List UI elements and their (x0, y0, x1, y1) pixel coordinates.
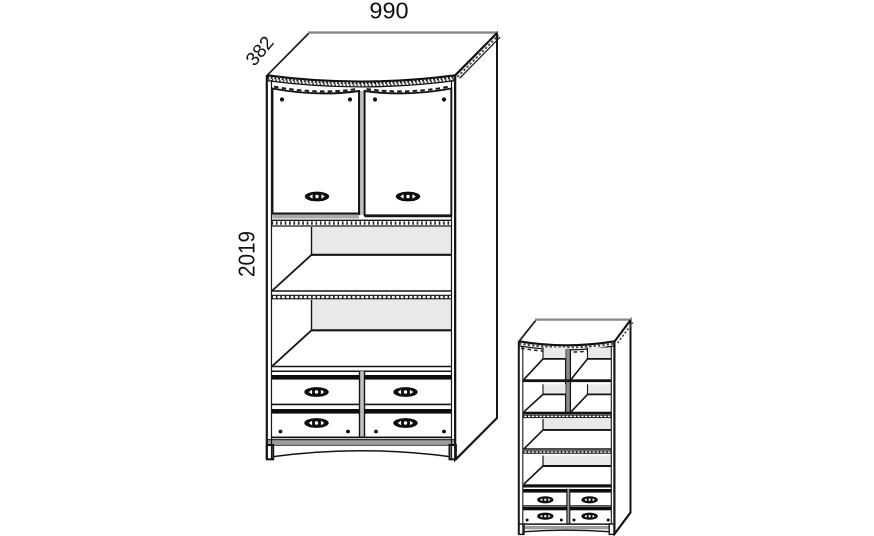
svg-text:2019: 2019 (233, 231, 259, 277)
svg-text:990: 990 (369, 0, 408, 24)
